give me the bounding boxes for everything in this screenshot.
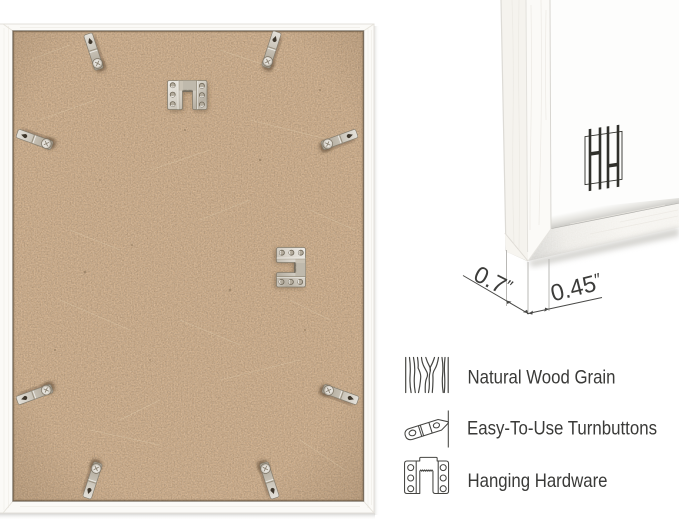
svg-text:Hanging Hardware: Hanging Hardware	[468, 470, 608, 492]
svg-text:0.45″: 0.45″	[548, 269, 605, 307]
svg-text:0.7″: 0.7″	[470, 261, 516, 302]
svg-text:Easy-To-Use Turnbuttons: Easy-To-Use Turnbuttons	[467, 418, 657, 440]
svg-text:Natural Wood Grain: Natural Wood Grain	[468, 367, 616, 389]
